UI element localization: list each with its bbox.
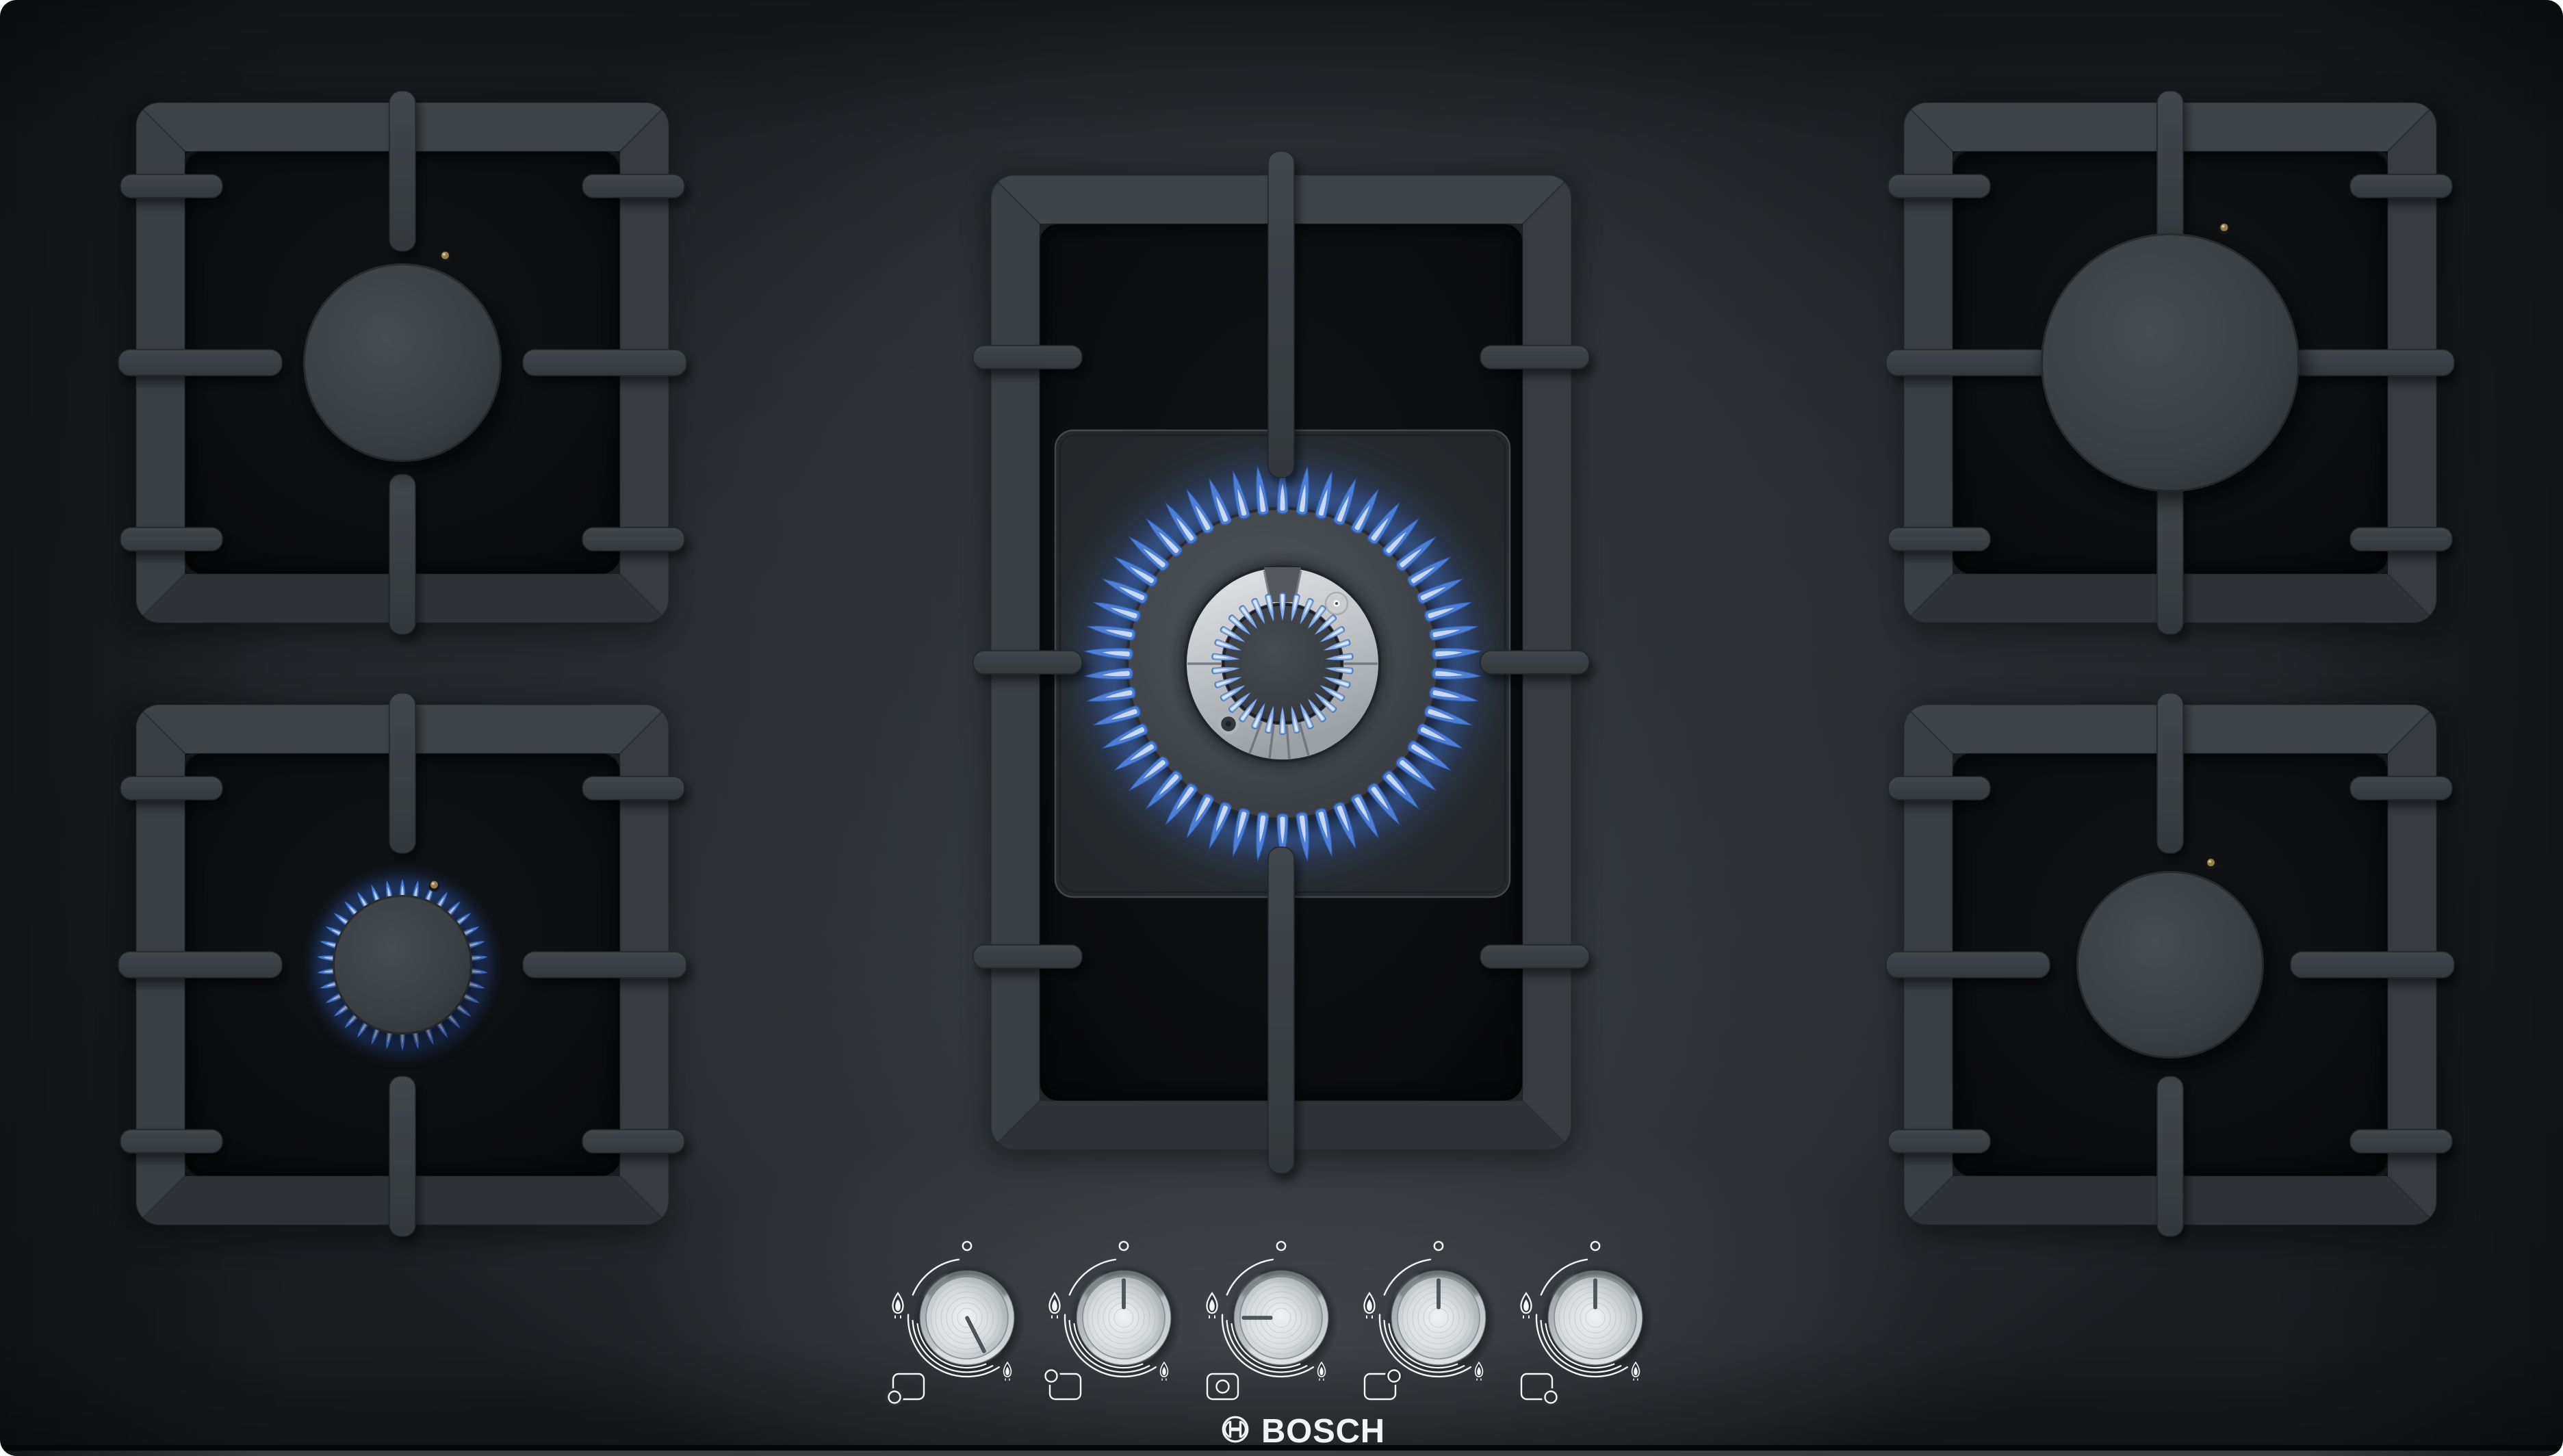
svg-text:BOSCH: BOSCH — [1261, 1413, 1385, 1450]
